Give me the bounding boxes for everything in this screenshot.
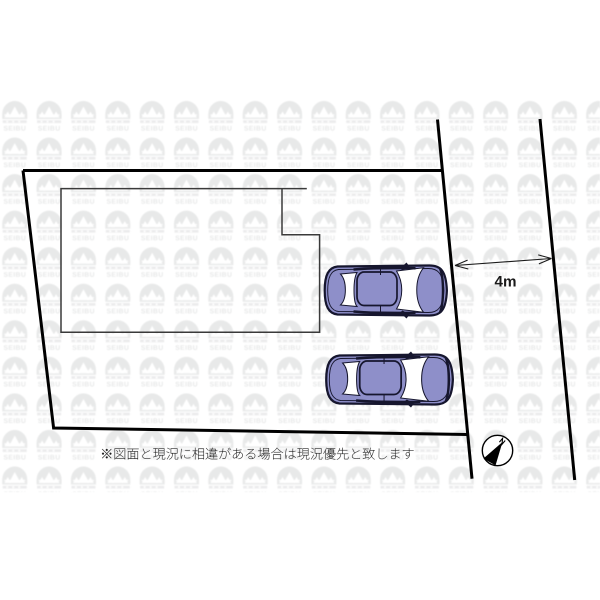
svg-text:4m: 4m (495, 274, 517, 291)
